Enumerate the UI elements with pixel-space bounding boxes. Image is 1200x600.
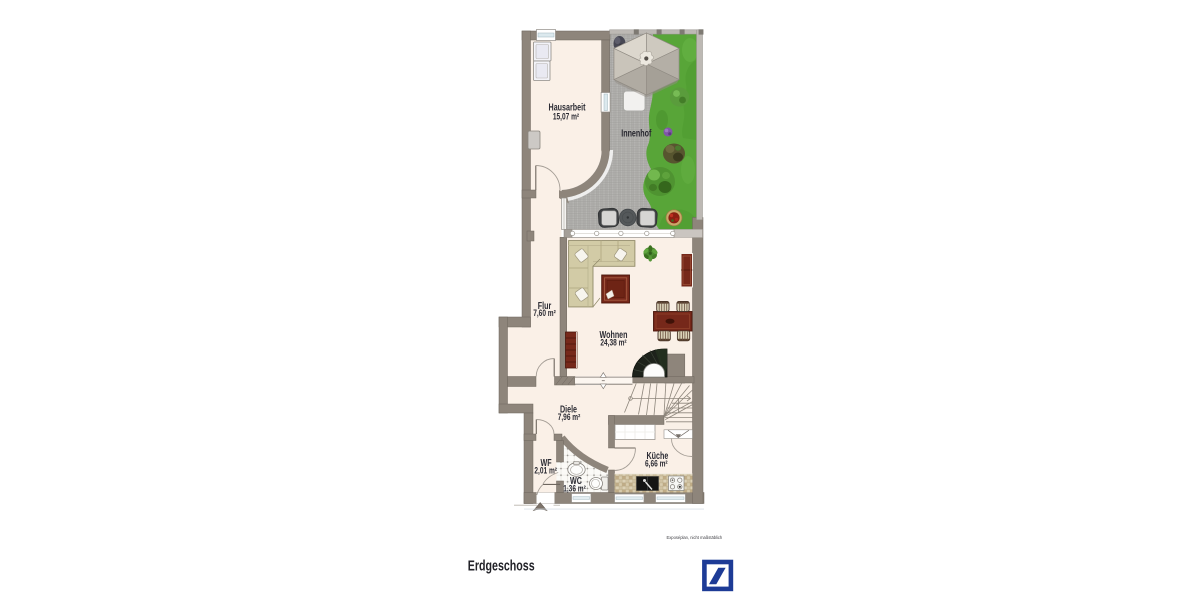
svg-text:1,36 m²: 1,36 m² [563, 484, 586, 494]
svg-text:Innenhof: Innenhof [621, 127, 651, 138]
svg-text:Erdgeschoss: Erdgeschoss [468, 557, 535, 574]
svg-text:15,07 m²: 15,07 m² [553, 112, 580, 122]
svg-text:24,38 m²: 24,38 m² [600, 337, 627, 347]
svg-text:7,96 m²: 7,96 m² [558, 412, 581, 422]
svg-text:2,01 m²: 2,01 m² [534, 466, 557, 476]
svg-text:7,60 m²: 7,60 m² [533, 308, 556, 318]
svg-text:Exposéplan, nicht maßstäblich: Exposéplan, nicht maßstäblich [667, 535, 723, 540]
svg-text:6,66 m²: 6,66 m² [645, 458, 668, 468]
